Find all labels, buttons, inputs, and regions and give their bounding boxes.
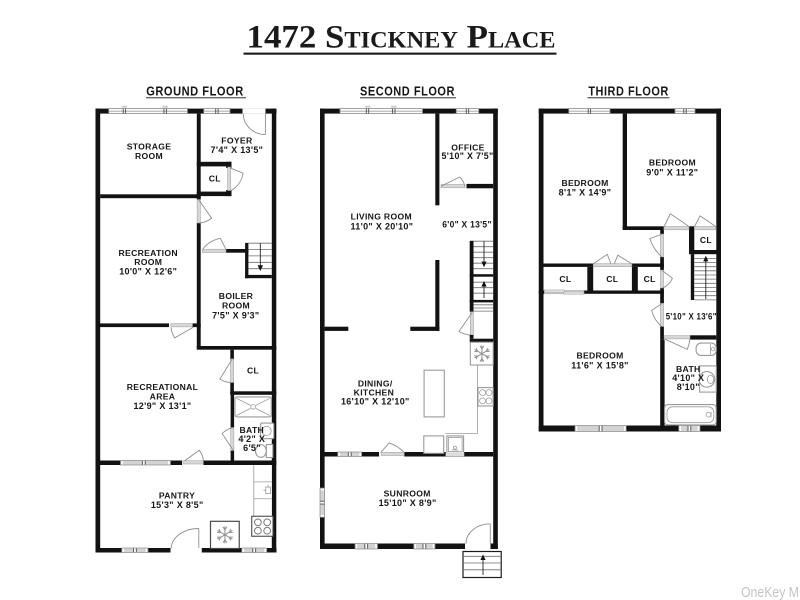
svg-text:SECOND FLOOR: SECOND FLOOR xyxy=(360,84,455,98)
svg-text:15'10" X 8'9": 15'10" X 8'9" xyxy=(379,498,437,508)
svg-text:OneKey MLS: OneKey MLS xyxy=(741,584,800,600)
svg-text:STORAGE: STORAGE xyxy=(127,141,172,151)
svg-text:CL: CL xyxy=(606,274,618,284)
svg-text:ROOM: ROOM xyxy=(134,257,162,267)
svg-text:12'9" X 13'1": 12'9" X 13'1" xyxy=(133,401,191,411)
svg-text:ROOM: ROOM xyxy=(222,301,250,311)
svg-text:CL: CL xyxy=(247,366,259,376)
svg-text:16'10" X 12'10": 16'10" X 12'10" xyxy=(341,397,410,407)
svg-text:11'6" X 15'8": 11'6" X 15'8" xyxy=(571,360,629,370)
svg-text:8'1" X 14'9": 8'1" X 14'9" xyxy=(559,187,612,197)
svg-text:BEDROOM: BEDROOM xyxy=(576,350,623,360)
svg-text:THIRD FLOOR: THIRD FLOOR xyxy=(588,84,669,98)
svg-text:7'5" X 9'3": 7'5" X 9'3" xyxy=(212,311,259,321)
svg-text:CL: CL xyxy=(700,235,712,245)
svg-text:1472 Stickney Place: 1472 Stickney Place xyxy=(247,20,556,56)
svg-text:CL: CL xyxy=(209,174,221,184)
svg-text:CL: CL xyxy=(644,274,656,284)
svg-text:6'5": 6'5" xyxy=(243,443,261,453)
svg-text:PANTRY: PANTRY xyxy=(159,490,195,500)
svg-text:11'0" X 20'10": 11'0" X 20'10" xyxy=(350,221,413,231)
svg-text:GROUND FLOOR: GROUND FLOOR xyxy=(146,84,244,98)
svg-text:6'0" X 13'5": 6'0" X 13'5" xyxy=(442,220,492,230)
svg-text:BEDROOM: BEDROOM xyxy=(649,158,696,168)
svg-text:5'10" X 13'6": 5'10" X 13'6" xyxy=(666,311,717,321)
svg-text:8'10": 8'10" xyxy=(677,382,700,392)
svg-text:SUNROOM: SUNROOM xyxy=(384,489,431,499)
svg-text:LIVING ROOM: LIVING ROOM xyxy=(351,212,412,222)
svg-text:CL: CL xyxy=(559,274,571,284)
svg-text:9'0" X 11'2": 9'0" X 11'2" xyxy=(646,167,698,177)
svg-text:15'3" X 8'5": 15'3" X 8'5" xyxy=(151,500,204,510)
svg-text:10'0" X 12'6": 10'0" X 12'6" xyxy=(119,267,177,277)
svg-text:7'4" X 13'5": 7'4" X 13'5" xyxy=(211,145,264,155)
svg-text:5'10" X 7'5": 5'10" X 7'5" xyxy=(442,151,494,161)
svg-text:ROOM: ROOM xyxy=(135,151,163,161)
svg-text:RECREATIONAL: RECREATIONAL xyxy=(127,382,198,392)
